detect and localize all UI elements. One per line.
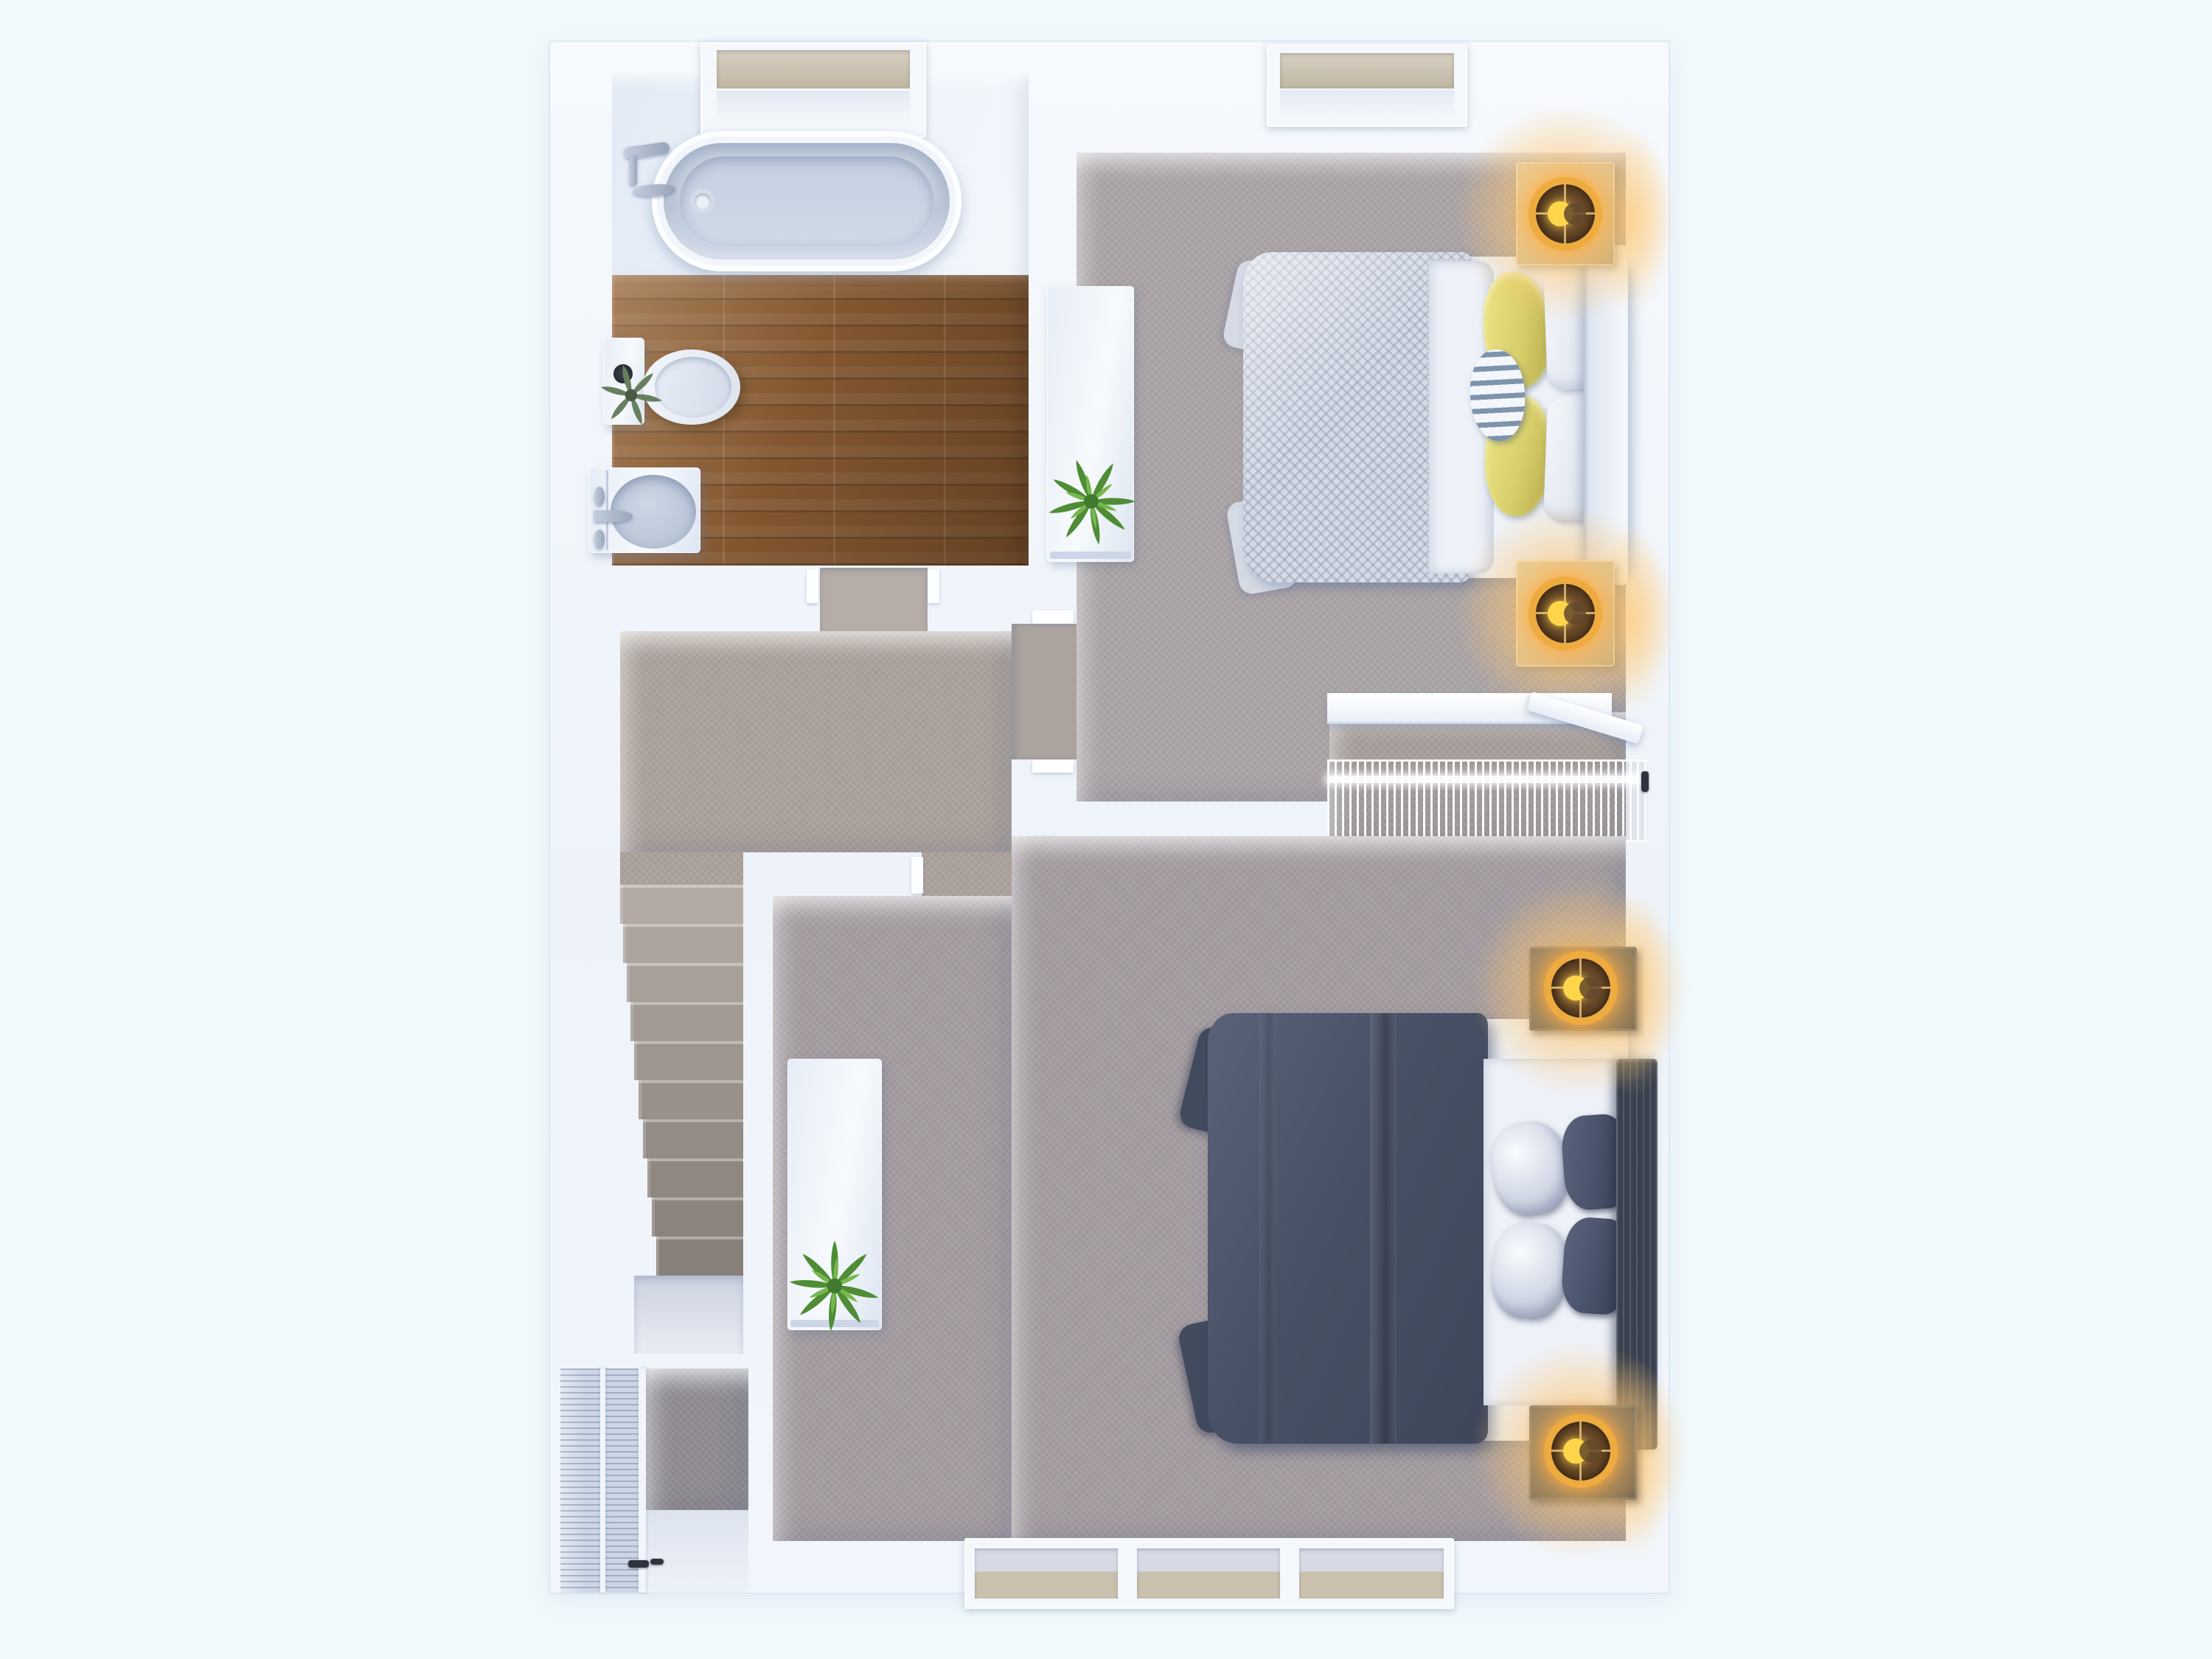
dresser-base-shadow xyxy=(1050,552,1131,559)
window-pane xyxy=(1137,1548,1280,1599)
bedroom2-triple-window xyxy=(964,1538,1454,1609)
louvered-closet-lower-floor xyxy=(646,1510,748,1593)
lamp-ring xyxy=(1528,177,1602,251)
bedroom1-window-glass xyxy=(1280,53,1454,88)
bedroom1-window-sill xyxy=(1280,90,1454,116)
lamp-bulb-shadow xyxy=(1579,1440,1601,1462)
stair-step xyxy=(630,1002,743,1041)
bath-faucet-pipe xyxy=(630,155,637,186)
stair-step xyxy=(627,963,743,1002)
floor-plan-canvas xyxy=(0,0,2212,1659)
staircase-down xyxy=(620,852,743,1354)
closet-rod xyxy=(1327,776,1647,783)
sink-spout xyxy=(594,510,633,522)
skylight-sill xyxy=(717,91,910,120)
bedroom1-door-threshold xyxy=(1012,624,1077,759)
toilet-seat xyxy=(655,357,731,417)
bedroom1-door-jamb-top xyxy=(1032,611,1074,624)
skylight-glass xyxy=(717,50,910,88)
bedroom1-potted-plant xyxy=(1046,456,1137,547)
stair-step xyxy=(639,1080,743,1119)
hallway-floor xyxy=(620,631,1012,852)
duvet-fold xyxy=(1370,1013,1397,1444)
bathroom-door-jamb-left xyxy=(807,569,818,603)
louvered-door-edge xyxy=(639,1368,646,1593)
bedroom2-door-jamb-left xyxy=(911,857,923,894)
window-pane xyxy=(1299,1548,1444,1599)
stair-step xyxy=(647,1158,743,1197)
sink-handle-top xyxy=(594,487,605,506)
bedroom1-window xyxy=(1267,44,1467,127)
closet-door-handle xyxy=(1641,771,1649,792)
lamp-bulb-shadow xyxy=(1564,602,1586,625)
sink-handle-bottom xyxy=(594,529,605,549)
bathroom-door-threshold xyxy=(820,568,928,631)
stair-step xyxy=(620,885,743,924)
stair-step xyxy=(643,1119,743,1158)
lamp-ring xyxy=(1528,577,1602,650)
bathroom-door-jamb-right xyxy=(928,569,939,603)
bed2-duvet xyxy=(1208,1013,1488,1444)
louvered-door-divider xyxy=(600,1368,605,1593)
stair-step xyxy=(652,1197,743,1237)
closet-wire-shelf-rack xyxy=(1327,759,1647,842)
louvered-door-handle xyxy=(628,1560,649,1568)
bedroom1-door-jamb-bottom xyxy=(1032,759,1074,773)
window-pane xyxy=(975,1548,1118,1599)
stair-step xyxy=(623,924,743,963)
bathtub-inner xyxy=(680,156,933,246)
bedroom2-doorway-floor xyxy=(922,852,1012,897)
louvered-door-handle xyxy=(650,1559,664,1565)
louvered-closet-floor xyxy=(646,1368,748,1510)
stair-step xyxy=(656,1237,743,1276)
lamp-bulb-shadow xyxy=(1564,203,1586,225)
lamp-bulb-shadow xyxy=(1579,977,1601,999)
bathroom-skylight-window xyxy=(700,42,926,138)
bathtub xyxy=(652,131,961,271)
duvet-fold xyxy=(1259,1013,1276,1444)
bedroom2-potted-plant xyxy=(787,1239,882,1333)
stair-top-strip xyxy=(620,852,743,885)
toilet-plant xyxy=(597,361,665,429)
lamp-ring xyxy=(1544,951,1618,1025)
bathtub-drain xyxy=(690,189,715,214)
stair-landing xyxy=(634,1276,743,1354)
stair-step xyxy=(634,1041,743,1080)
lamp-ring xyxy=(1544,1414,1618,1488)
